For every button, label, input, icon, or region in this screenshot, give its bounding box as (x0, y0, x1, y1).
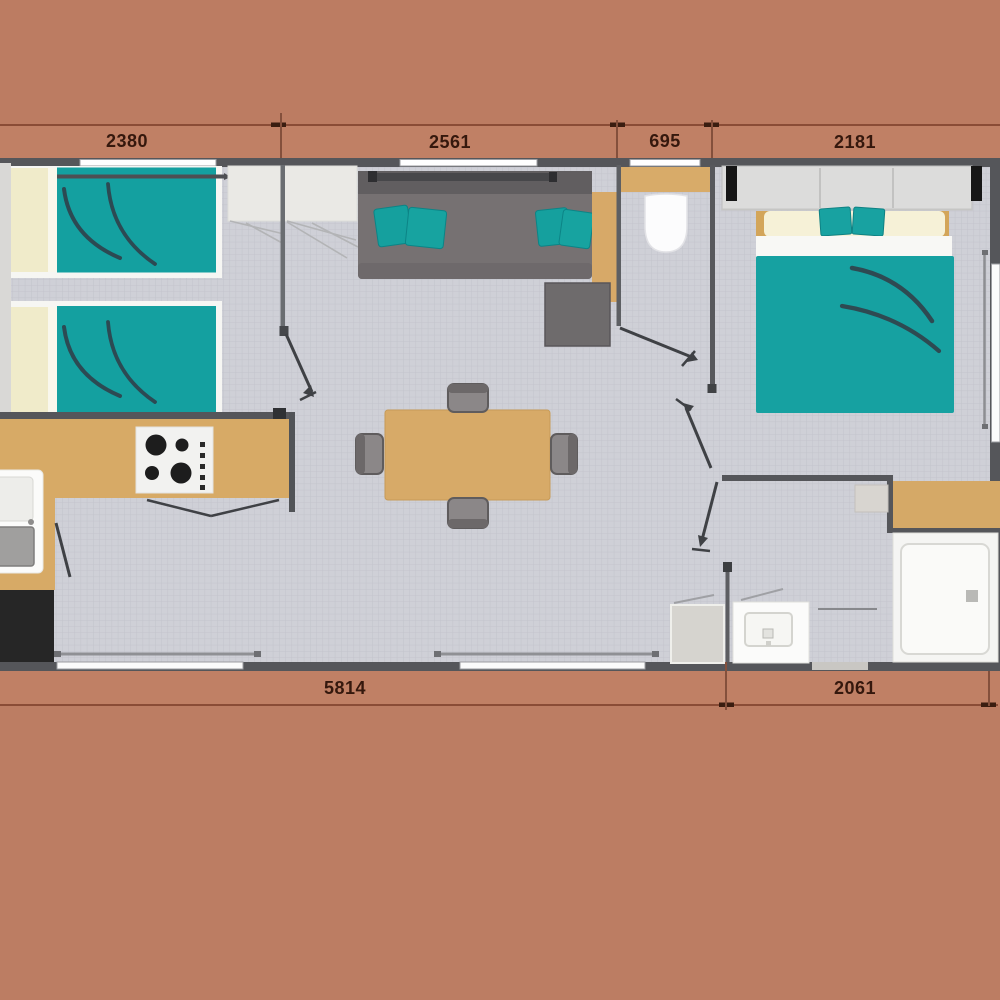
svg-text:2380: 2380 (106, 131, 148, 151)
svg-text:695: 695 (649, 131, 681, 151)
svg-text:5814: 5814 (324, 678, 366, 698)
svg-text:2061: 2061 (834, 678, 876, 698)
svg-text:2181: 2181 (834, 132, 876, 152)
svg-text:2561: 2561 (429, 132, 471, 152)
